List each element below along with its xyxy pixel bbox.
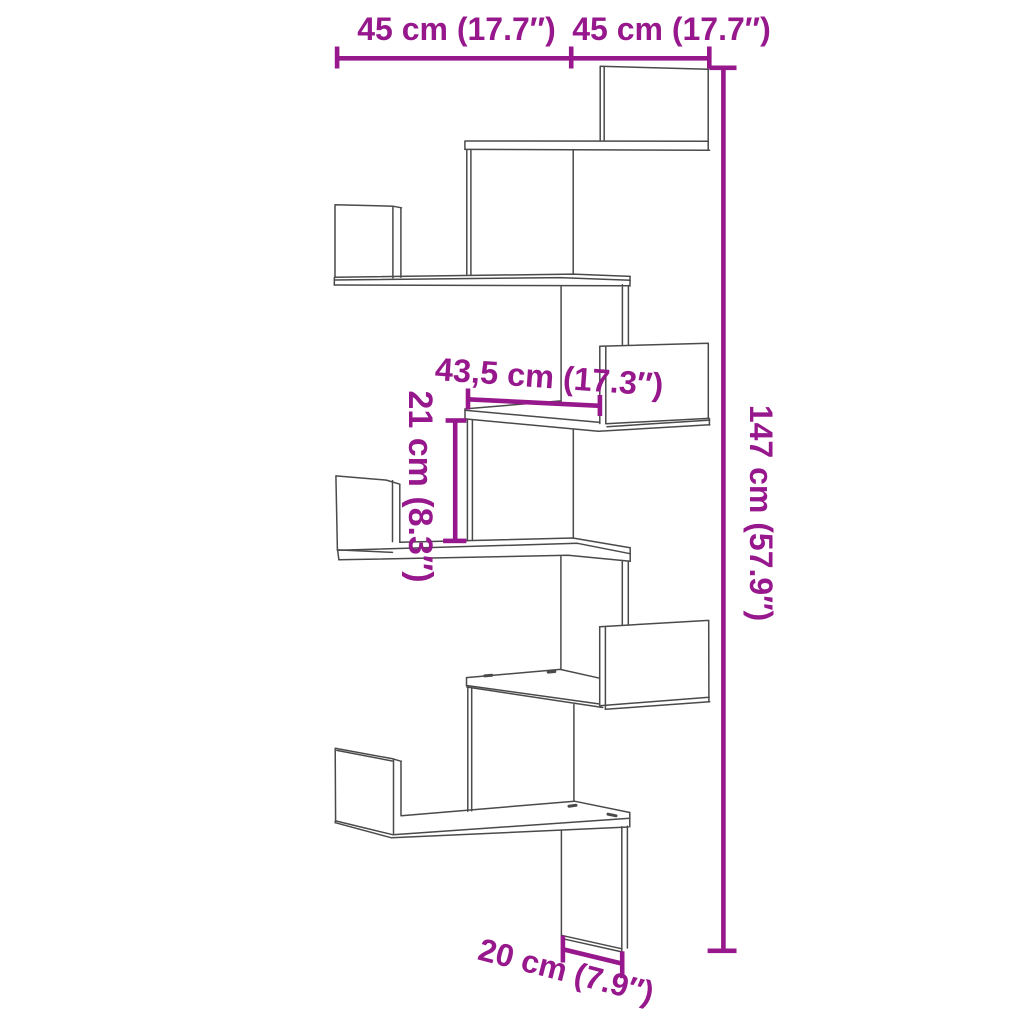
svg-text:45 cm (17.7″): 45 cm (17.7″)	[572, 11, 771, 47]
svg-text:45 cm (17.7″): 45 cm (17.7″)	[357, 11, 556, 47]
svg-text:147 cm (57.9″): 147 cm (57.9″)	[743, 405, 779, 621]
svg-text:21 cm (8.3″): 21 cm (8.3″)	[401, 390, 439, 582]
